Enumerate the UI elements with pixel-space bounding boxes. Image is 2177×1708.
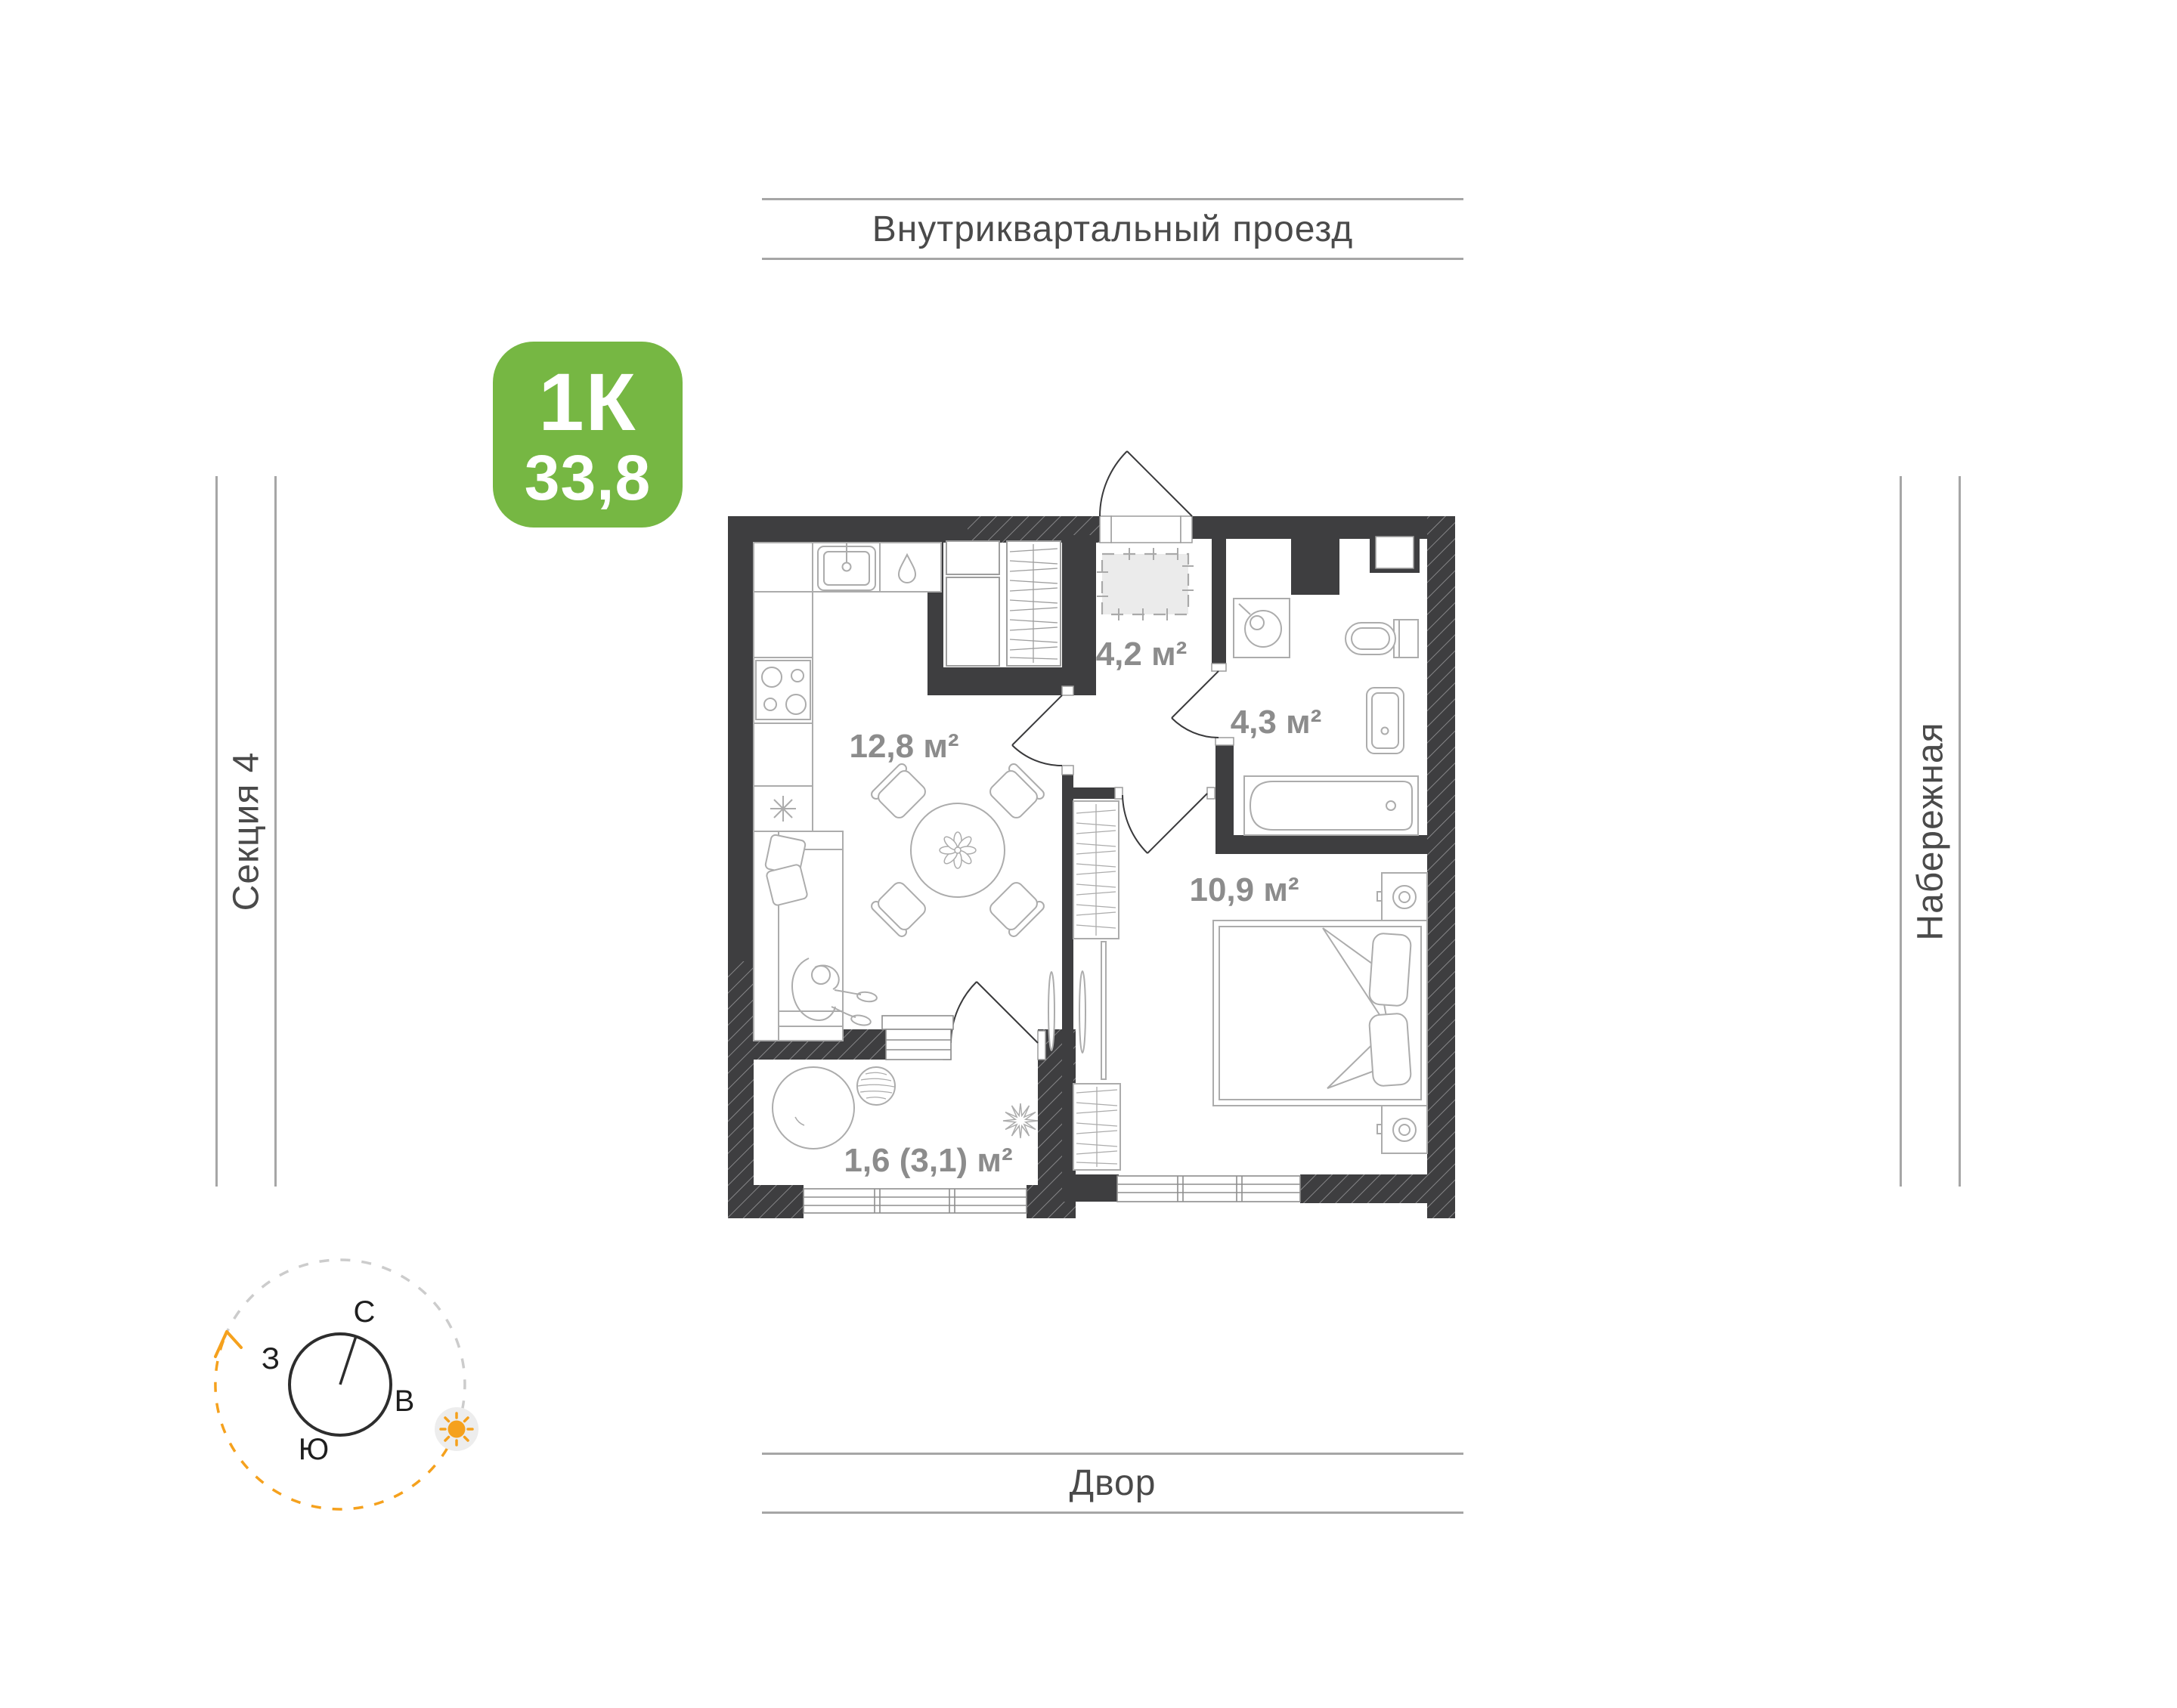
floorplan-page: Внутриквартальный проезд Двор Секция 4 Н… — [0, 0, 2177, 1708]
living-room-door — [1012, 695, 1062, 766]
niche-opening — [1376, 537, 1414, 568]
badge-rooms-label: 1К — [493, 361, 683, 443]
dining-set — [870, 763, 1046, 939]
street-label-right: Набережная — [1900, 476, 1961, 1187]
compass-rose: С З В Ю — [200, 1243, 488, 1530]
bedroom-door-jamb-right — [1207, 787, 1215, 799]
wall-bathroom-left-column — [1215, 745, 1234, 835]
kitchen-living-area-label: 12,8 м² — [849, 728, 958, 765]
striped-pouf-icon — [857, 1067, 895, 1105]
plant-icon — [1003, 1103, 1038, 1138]
hall-wardrobe — [1007, 541, 1061, 666]
sofa-pillow — [766, 864, 808, 906]
bathroom-door — [1172, 671, 1219, 738]
wall-hall-bottom — [1073, 787, 1115, 799]
living-door-jamb-bottom — [1062, 766, 1073, 775]
street-label-bottom: Двор — [762, 1453, 1463, 1514]
dining-chair — [870, 763, 930, 822]
wall-bathroom-bottom — [1215, 835, 1427, 854]
street-label-left-text: Секция 4 — [225, 752, 267, 911]
apartment-type-badge: 1К 33,8 — [493, 342, 683, 528]
wall-balcony-bottom-left — [728, 1185, 804, 1218]
living-balcony-window — [882, 1016, 953, 1060]
toilet-icon — [1346, 620, 1418, 658]
hall-closet-small — [946, 541, 999, 574]
double-bed — [1213, 921, 1427, 1106]
street-label-top: Внутриквартальный проезд — [762, 198, 1463, 260]
fridge-star-icon — [770, 796, 796, 822]
bedroom-door — [1123, 794, 1207, 853]
hob-icon — [756, 661, 810, 719]
balcony-door — [951, 982, 1038, 1043]
bathroom-door-jamb-top — [1212, 664, 1226, 671]
entrance-threshold — [1111, 516, 1181, 543]
hall-closet-large — [946, 577, 999, 666]
bed-pillow — [1369, 933, 1411, 1006]
duct-shaft-block — [1291, 531, 1339, 595]
wall-stub-below-living-door — [1062, 775, 1073, 799]
compass-east-label: В — [395, 1385, 415, 1418]
bathroom-area-label: 4,3 м² — [1231, 704, 1322, 741]
bedroom-console — [1101, 942, 1106, 1079]
wall-left-balcony — [728, 961, 754, 1188]
washing-machine-icon — [1234, 599, 1290, 658]
badge-area-value: 33,8 — [493, 446, 683, 509]
sun-icon — [435, 1407, 478, 1451]
wall-bedroom-bottom-left — [1062, 1174, 1119, 1202]
entrance-door — [1100, 451, 1192, 516]
bedroom-door-jamb-left — [1115, 787, 1123, 799]
living-tv-icon — [1048, 972, 1054, 1050]
compass-west-label: З — [262, 1342, 280, 1375]
kitchen-sink-icon — [818, 543, 875, 590]
wall-central-upper — [1062, 535, 1096, 667]
wall-bathroom-left — [1212, 533, 1226, 664]
balcony-door-jamb-right — [1038, 1031, 1045, 1060]
balcony-glazing — [804, 1189, 1027, 1213]
street-label-left: Секция 4 — [215, 476, 277, 1187]
bathroom-sink-icon — [1367, 688, 1404, 753]
bedroom-tv-icon — [1079, 971, 1085, 1053]
dining-chair — [870, 878, 930, 938]
dining-chair — [986, 878, 1045, 938]
balcony-area-label: 1,6 (3,1) м² — [844, 1142, 1012, 1179]
entrance-jamb-right — [1181, 516, 1192, 543]
hall-area-label: 4,2 м² — [1096, 636, 1188, 673]
bathtub-icon — [1244, 776, 1418, 835]
street-label-bottom-text: Двор — [1070, 1462, 1157, 1504]
balcony-furniture — [773, 1067, 1038, 1149]
bed-pillow — [1369, 1013, 1411, 1086]
nightstand — [1377, 873, 1427, 921]
bedroom-area-label: 10,9 м² — [1189, 871, 1299, 908]
street-label-top-text: Внутриквартальный проезд — [872, 209, 1354, 250]
bedroom-furniture — [1073, 801, 1427, 1170]
bedroom-wardrobe-top — [1073, 801, 1119, 939]
wall-bedroom-west — [1062, 799, 1073, 1174]
entrance-jamb-left — [1100, 516, 1111, 543]
bedroom-wardrobe-bottom — [1073, 1084, 1120, 1170]
compass-north-label: С — [354, 1295, 376, 1329]
dining-chair — [986, 763, 1045, 822]
balcony-table — [773, 1067, 854, 1149]
ceiling-hatch-dashed-box — [1097, 548, 1194, 620]
compass-south-label: Ю — [299, 1433, 329, 1466]
wall-left — [728, 543, 754, 961]
sofa — [754, 831, 878, 1041]
bedroom-window — [1117, 1176, 1300, 1202]
floor-plan: 12,8 м² 4,2 м² 4,3 м² 10,9 м² 1,6 (3,1) … — [726, 414, 1466, 1224]
nightstand — [1377, 1106, 1427, 1153]
street-label-right-text: Набережная — [1909, 722, 1951, 940]
living-door-jamb-top — [1062, 686, 1073, 695]
sun-path-arrow-icon — [215, 1332, 241, 1357]
wall-right-exterior — [1427, 516, 1455, 1218]
table-flower-icon — [940, 832, 976, 868]
wall-bedroom-bottom-hatched — [1300, 1174, 1427, 1203]
